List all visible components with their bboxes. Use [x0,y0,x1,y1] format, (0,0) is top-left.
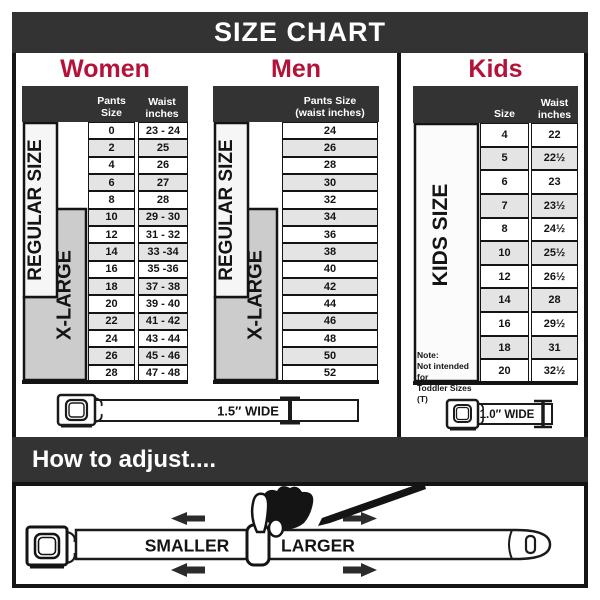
seatbelt-buckle-icon [27,527,75,568]
men-pants-size-cell: 48 [282,330,378,347]
women-pants-size-cell: 8 [88,191,135,208]
kids-waist-cell: 28 [531,288,578,312]
larger-label: LARGER [281,536,355,556]
men-header-line2: (waist inches) [282,107,378,119]
kids-waist-cell: 24½ [531,218,578,242]
kids-waist-cell: 26½ [531,265,578,289]
women-waist-cell: 27 [138,174,188,191]
kids-table-underline [413,381,578,385]
women-heading: Women [22,55,188,83]
men-pants-size-cell: 32 [282,191,378,208]
kids-size-table: 422 522½ 623 723½ 824½ 1025½ 1226½ 1428 … [480,123,578,383]
kids-waist-header: Waistinches [531,97,578,121]
kids-size-cell: 5 [480,147,529,171]
kids-size-category-gutter: KIDS SIZE [413,123,480,383]
women-pants-size-cell: 16 [88,261,135,278]
women-pants-size-cell: 18 [88,278,135,295]
arrow-left-icon [171,563,205,577]
men-size-category-gutter: REGULAR SIZE X-LARGE [213,122,279,382]
adult-belt-width-label: 1.5″ WIDE [217,404,279,419]
women-pants-size-cell: 12 [88,226,135,243]
women-waist-header-line1: Waist [137,96,187,108]
arrow-left-icon [171,512,205,525]
women-pants-size-cell: 6 [88,174,135,191]
kids-note-line2: Not intended for [417,361,479,383]
kids-size-cell: 6 [480,170,529,194]
kids-size-cell: 8 [480,218,529,242]
women-waist-cell: 23 - 24 [138,122,188,139]
women-waist-cell: 39 - 40 [138,295,188,312]
pinching-hand-icon [262,482,426,529]
seatbelt-buckle-icon [58,395,102,427]
men-pants-size-header: Pants Size(waist inches) [282,95,378,119]
kids-waist-header-line2: inches [531,109,578,121]
women-waist-cell: 35 -36 [138,261,188,278]
kids-size-cell: 16 [480,312,529,336]
kids-size-cell: 10 [480,241,529,265]
women-waist-cell: 45 - 46 [138,347,188,364]
adult-belt-illustration: 1.5″ WIDE [22,392,378,440]
kids-waist-cell: 22½ [531,147,578,171]
women-pants-size-cell: 26 [88,347,135,364]
kids-note-line1: Note: [417,350,479,361]
men-heading: Men [213,55,379,83]
women-waist-cell: 37 - 38 [138,278,188,295]
men-pants-size-cell: 42 [282,278,378,295]
women-pants-size-cell: 10 [88,209,135,226]
arrow-right-icon [343,563,377,577]
men-pants-size-cell: 50 [282,347,378,364]
women-waist-cell: 31 - 32 [138,226,188,243]
men-pants-size-cell: 28 [282,157,378,174]
smaller-label: SMALLER [145,536,230,556]
women-waist-cell: 43 - 44 [138,330,188,347]
women-pants-size-cell: 2 [88,139,135,156]
kids-size-cell: 4 [480,123,529,147]
kids-size-cell: 12 [480,265,529,289]
women-table-header: Pants Size Waistinches [22,86,188,122]
women-pants-size-cell: 4 [88,157,135,174]
women-pants-size-cell: 14 [88,243,135,260]
women-waist-cell: 41 - 42 [138,313,188,330]
kids-waist-cell: 22 [531,123,578,147]
women-pants-size-cell: 24 [88,330,135,347]
kids-size-cell: 7 [480,194,529,218]
men-pants-size-cell: 44 [282,295,378,312]
kids-size-header: Size [480,108,529,120]
kids-belt-width-label: 1.0″ WIDE [480,409,535,421]
men-table-underline [213,380,379,384]
kids-size-cell: 20 [480,359,529,383]
kids-waist-cell: 31 [531,336,578,360]
kids-panel-divider [397,53,401,437]
men-pants-size-cell: 24 [282,122,378,139]
women-waist-cell: 28 [138,191,188,208]
women-waist-header: Waistinches [137,96,187,120]
women-waist-header-line2: inches [137,108,187,120]
kids-waist-cell: 23½ [531,194,578,218]
women-pants-size-cell: 22 [88,313,135,330]
women-waist-cell: 26 [138,157,188,174]
kids-belt-illustration: 1.0″ WIDE [440,396,575,438]
kids-size-cell: 14 [480,288,529,312]
men-pants-size-cell: 46 [282,313,378,330]
women-pants-size-header: Pants Size [88,95,135,119]
kids-waist-cell: 25½ [531,241,578,265]
women-pants-size-cell: 0 [88,122,135,139]
men-pants-size-cell: 30 [282,174,378,191]
kids-size-cell: 18 [480,336,529,360]
kids-waist-cell: 32½ [531,359,578,383]
men-size-table: 24 26 28 30 32 34 36 38 40 42 44 46 48 5… [282,122,378,382]
men-table-header: Pants Size(waist inches) [213,86,379,122]
how-to-adjust-heading: How to adjust.... [12,437,588,482]
kids-waist-header-line1: Waist [531,97,578,109]
women-regular-label: REGULAR SIZE [25,139,46,280]
kids-waist-cell: 23 [531,170,578,194]
women-waist-cell: 33 -34 [138,243,188,260]
seatbelt-buckle-icon [447,400,483,430]
belt-tip-slot [526,536,535,553]
men-pants-size-cell: 26 [282,139,378,156]
kids-table-header: Size Waistinches [413,86,578,123]
women-pants-size-cell: 20 [88,295,135,312]
women-waist-cell: 29 - 30 [138,209,188,226]
size-chart-page: SIZE CHART Women Men Kids Pants Size Wai… [0,0,600,600]
men-header-line1: Pants Size [282,95,378,107]
men-pants-size-cell: 40 [282,261,378,278]
women-table-underline [22,380,188,384]
page-title: SIZE CHART [12,12,588,53]
kids-heading: Kids [413,55,578,83]
kids-size-label: KIDS SIZE [429,184,452,287]
men-pants-size-cell: 38 [282,243,378,260]
women-size-category-gutter: REGULAR SIZE X-LARGE [22,122,88,382]
men-xlarge-label: X-LARGE [245,250,267,340]
men-pants-size-cell: 34 [282,209,378,226]
women-xlarge-label: X-LARGE [54,250,76,340]
kids-waist-cell: 29½ [531,312,578,336]
men-pants-size-cell: 36 [282,226,378,243]
women-waist-cell: 25 [138,139,188,156]
adjust-illustration: SMALLER LARGER [12,482,588,588]
men-regular-label: REGULAR SIZE [216,139,237,280]
women-size-table: 023 - 24 225 426 627 828 1029 - 30 1231 … [88,122,188,382]
